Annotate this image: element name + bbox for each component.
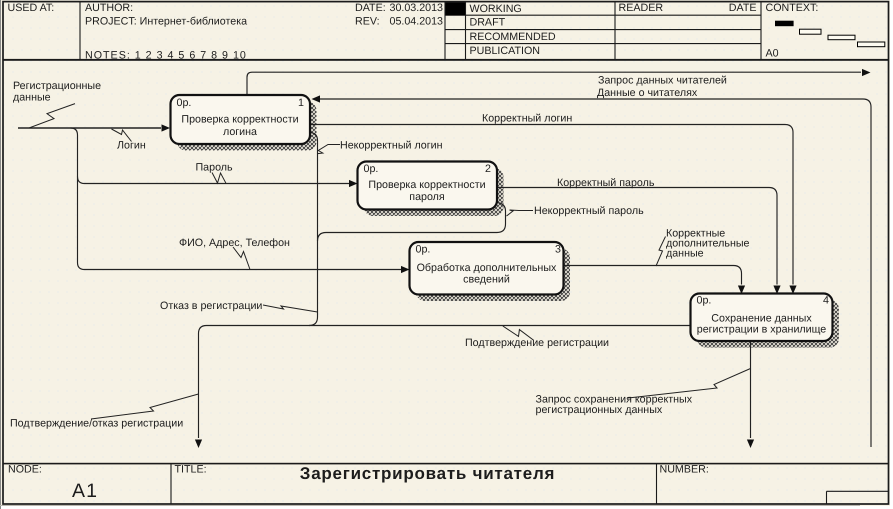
svg-text:Обработка дополнительных: Обработка дополнительных bbox=[417, 262, 557, 274]
svg-text:DATE: DATE bbox=[729, 2, 757, 14]
svg-text:Пароль: Пароль bbox=[196, 161, 234, 173]
svg-text:USED AT:: USED AT: bbox=[8, 2, 55, 14]
svg-text:Корректный логин: Корректный логин bbox=[482, 113, 572, 125]
svg-text:Зарегистрировать читателя: Зарегистрировать читателя bbox=[300, 464, 555, 483]
svg-text:Отказ в регистрации: Отказ в регистрации bbox=[160, 300, 262, 312]
svg-text:REV:: REV: bbox=[355, 16, 380, 28]
svg-text:RECOMMENDED: RECOMMENDED bbox=[470, 31, 556, 43]
svg-text:ФИО, Адрес, Телефон: ФИО, Адрес, Телефон bbox=[179, 237, 290, 249]
svg-text:регистрации в хранилище: регистрации в хранилище bbox=[697, 324, 827, 336]
svg-text:05.04.2013: 05.04.2013 bbox=[390, 16, 444, 28]
svg-text:пароля: пароля bbox=[409, 191, 445, 203]
svg-text:Данные о читателях: Данные о читателях bbox=[597, 87, 698, 99]
svg-text:Некорректный логин: Некорректный логин bbox=[340, 140, 443, 152]
svg-text:A0: A0 bbox=[766, 48, 779, 60]
svg-text:NOTES: 1 2 3 4 5 6 7 8 9 10: NOTES: 1 2 3 4 5 6 7 8 9 10 bbox=[85, 49, 247, 61]
svg-text:NUMBER:: NUMBER: bbox=[660, 464, 709, 476]
svg-text:регистрационных данных: регистрационных данных bbox=[536, 404, 663, 416]
svg-text:2: 2 bbox=[485, 163, 491, 175]
svg-text:4: 4 bbox=[823, 295, 829, 307]
svg-text:Корректный пароль: Корректный пароль bbox=[557, 177, 655, 189]
svg-text:AUTHOR:: AUTHOR: bbox=[85, 2, 133, 14]
svg-text:NODE:: NODE: bbox=[8, 464, 42, 476]
svg-text:данные: данные bbox=[13, 92, 51, 104]
svg-text:TITLE:: TITLE: bbox=[175, 464, 207, 476]
svg-text:WORKING: WORKING bbox=[470, 3, 522, 15]
svg-text:3: 3 bbox=[555, 244, 561, 256]
svg-text:DRAFT: DRAFT bbox=[470, 16, 506, 28]
svg-text:PROJECT: Интернет-библиотека: PROJECT: Интернет-библиотека bbox=[85, 16, 247, 28]
svg-text:Подтверждение регистрации: Подтверждение регистрации bbox=[465, 337, 609, 349]
svg-text:логина: логина bbox=[223, 126, 257, 138]
svg-text:сведений: сведений bbox=[463, 274, 510, 286]
svg-text:1: 1 bbox=[298, 97, 304, 109]
svg-text:0р.: 0р. bbox=[364, 163, 379, 175]
svg-text:READER: READER bbox=[619, 2, 664, 14]
svg-text:CONTEXT:: CONTEXT: bbox=[766, 2, 819, 14]
svg-text:A1: A1 bbox=[72, 480, 98, 502]
svg-text:Некорректный пароль: Некорректный пароль bbox=[534, 205, 644, 217]
svg-text:0р.: 0р. bbox=[697, 295, 712, 307]
svg-text:PUBLICATION: PUBLICATION bbox=[470, 45, 540, 57]
svg-text:данные: данные bbox=[666, 248, 704, 260]
svg-text:Регистрационные: Регистрационные bbox=[13, 80, 101, 92]
svg-text:Подтверждение/отказ регистраци: Подтверждение/отказ регистрации bbox=[10, 418, 183, 430]
svg-text:0р.: 0р. bbox=[177, 97, 192, 109]
svg-text:0р.: 0р. bbox=[416, 244, 431, 256]
svg-text:Проверка корректности: Проверка корректности bbox=[181, 114, 298, 126]
svg-text:30.03.2013: 30.03.2013 bbox=[390, 2, 444, 14]
svg-text:DATE:: DATE: bbox=[355, 2, 386, 14]
svg-text:Проверка корректности: Проверка корректности bbox=[368, 179, 485, 191]
svg-text:Логин: Логин bbox=[117, 140, 146, 152]
svg-text:Запрос данных читателей: Запрос данных читателей bbox=[598, 75, 727, 87]
